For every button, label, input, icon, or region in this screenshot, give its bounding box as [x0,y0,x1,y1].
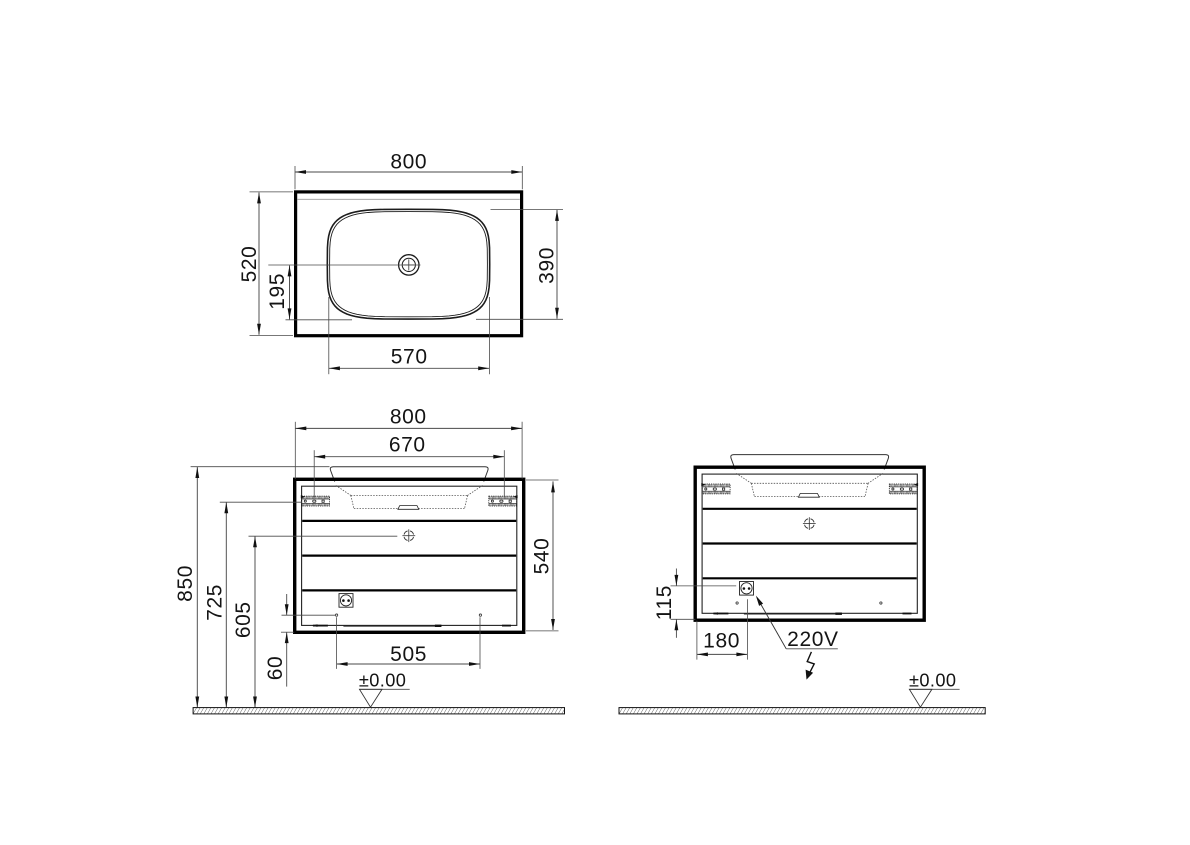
svg-text:570: 570 [391,346,428,369]
svg-text:540: 540 [530,538,553,575]
svg-text:800: 800 [390,151,427,174]
svg-text:520: 520 [238,246,261,283]
svg-text:850: 850 [174,565,197,602]
svg-text:220V: 220V [787,628,838,651]
svg-text:±0.00: ±0.00 [909,671,956,691]
svg-text:605: 605 [232,601,255,638]
svg-text:±0.00: ±0.00 [359,671,406,691]
svg-text:115: 115 [653,585,676,620]
svg-text:60: 60 [264,656,287,681]
svg-text:670: 670 [389,433,426,456]
svg-text:195: 195 [266,273,289,310]
svg-text:505: 505 [390,643,427,666]
svg-text:390: 390 [536,247,559,284]
svg-text:725: 725 [204,584,227,621]
svg-text:180: 180 [703,630,740,653]
svg-text:800: 800 [390,405,427,428]
